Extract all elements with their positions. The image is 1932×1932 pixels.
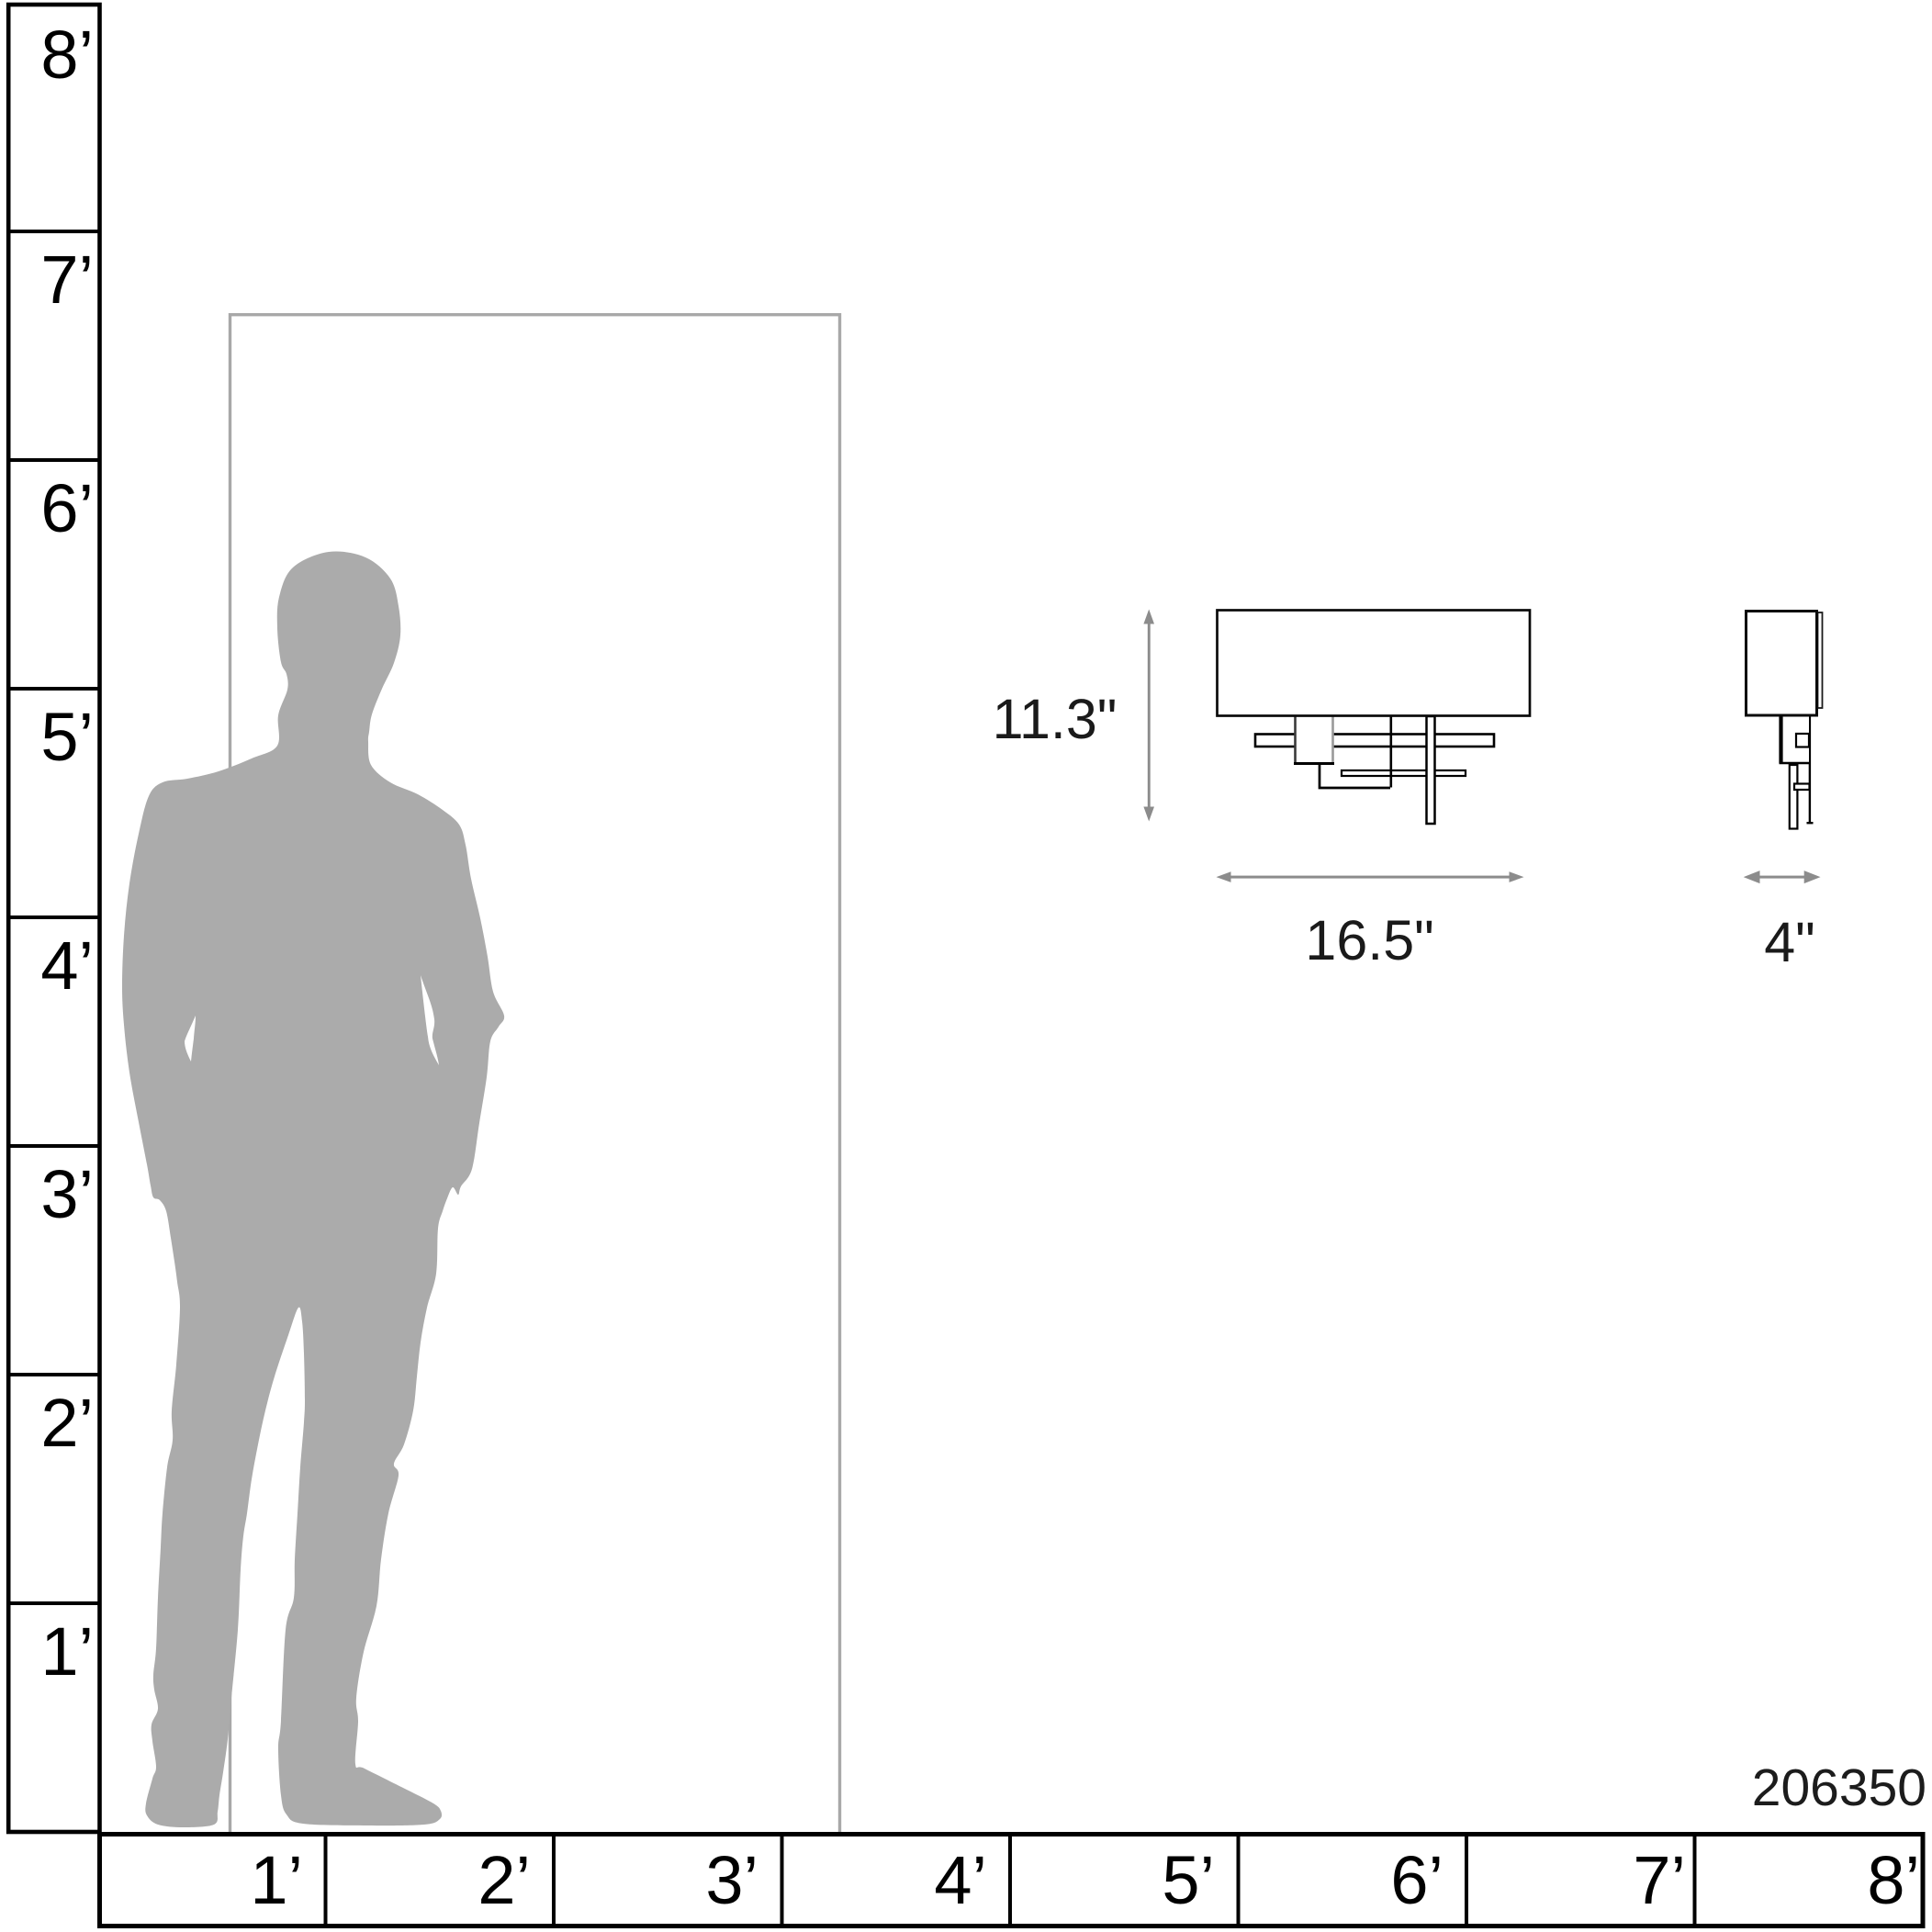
svg-text:8’: 8’ bbox=[40, 17, 94, 93]
svg-text:1’: 1’ bbox=[40, 1613, 94, 1690]
svg-text:7’: 7’ bbox=[40, 241, 94, 318]
svg-text:5’: 5’ bbox=[1162, 1842, 1215, 1918]
svg-text:5’: 5’ bbox=[40, 699, 94, 775]
svg-text:6’: 6’ bbox=[40, 470, 94, 546]
svg-text:3’: 3’ bbox=[705, 1842, 758, 1918]
svg-text:16.5": 16.5" bbox=[1305, 909, 1433, 972]
svg-text:3’: 3’ bbox=[40, 1156, 94, 1232]
svg-text:4’: 4’ bbox=[934, 1842, 987, 1918]
svg-text:8’: 8’ bbox=[1867, 1842, 1920, 1918]
svg-text:4’: 4’ bbox=[40, 927, 94, 1004]
svg-text:2’: 2’ bbox=[40, 1385, 94, 1461]
svg-text:4": 4" bbox=[1764, 911, 1815, 973]
svg-text:7’: 7’ bbox=[1633, 1842, 1686, 1918]
svg-text:1’: 1’ bbox=[250, 1842, 303, 1918]
svg-text:206350: 206350 bbox=[1752, 1758, 1926, 1817]
svg-text:6’: 6’ bbox=[1390, 1842, 1443, 1918]
svg-text:2’: 2’ bbox=[477, 1842, 531, 1918]
svg-text:11.3": 11.3" bbox=[993, 688, 1118, 750]
